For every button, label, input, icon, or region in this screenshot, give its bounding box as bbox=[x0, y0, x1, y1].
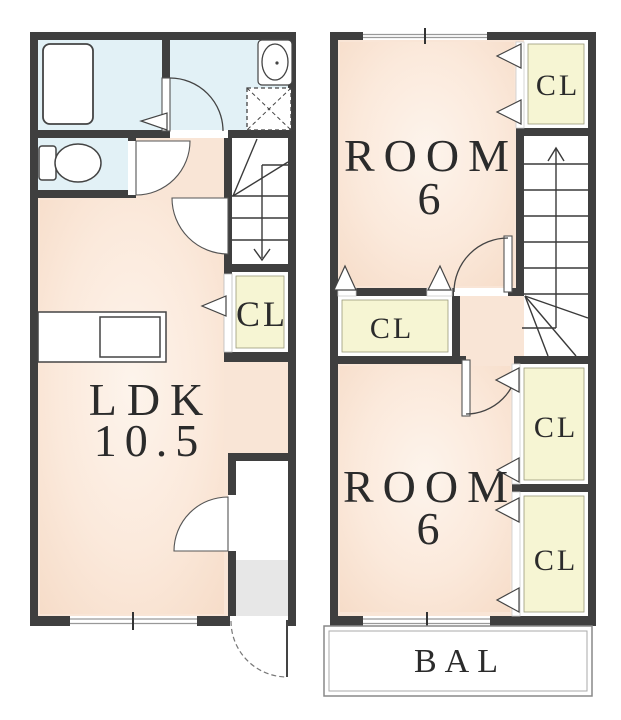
closet-2f-right-lower-label: CL bbox=[534, 544, 578, 577]
bathtub bbox=[43, 44, 93, 124]
entrance-door-swing bbox=[231, 621, 287, 677]
closet-2f-top-label: CL bbox=[536, 69, 580, 102]
floor-plan: LDK 10.5 CL bbox=[0, 0, 621, 720]
genkan-step bbox=[236, 560, 288, 616]
floor1: LDK 10.5 CL bbox=[30, 32, 296, 677]
kitchen-sink bbox=[100, 317, 160, 357]
toilet-fixture bbox=[39, 144, 101, 182]
stairwell-1f bbox=[232, 138, 288, 268]
floor2: BAL ROOM 6 ROOM 6 CL CL CL CL bbox=[324, 28, 596, 696]
balcony-label: BAL bbox=[414, 643, 506, 680]
closet-1f-label: CL bbox=[236, 294, 288, 334]
ldk-area-label: 10.5 bbox=[94, 415, 207, 466]
kitchen-counter bbox=[38, 312, 166, 362]
room-upper-door-leaf bbox=[504, 236, 512, 292]
room-upper-area-label: 6 bbox=[418, 173, 441, 224]
floor-plan-drawing: LDK 10.5 CL bbox=[0, 0, 621, 720]
entrance-door bbox=[230, 616, 288, 677]
washbasin bbox=[258, 40, 292, 85]
closet-2f-right-upper-label: CL bbox=[534, 411, 578, 444]
room-lower-door-leaf bbox=[462, 360, 470, 416]
balcony: BAL bbox=[324, 626, 592, 696]
closet-2f-mid-label: CL bbox=[370, 312, 414, 345]
washing-machine-pan bbox=[247, 88, 291, 130]
room-lower-area-label: 6 bbox=[417, 503, 440, 554]
